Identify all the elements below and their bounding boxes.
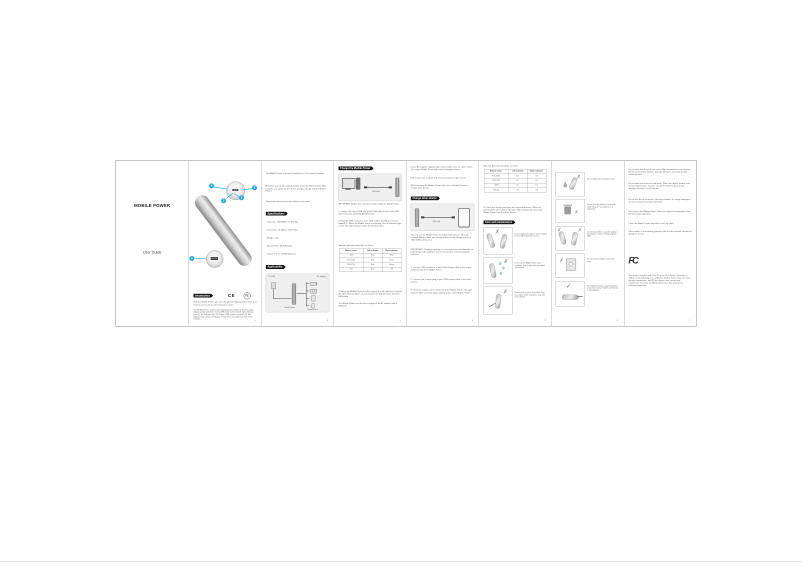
callout-2: 2 (239, 195, 244, 200)
intro-paragraph: With the Mobile Power, you can charge yo… (193, 301, 256, 306)
diagram-stub (306, 305, 309, 306)
pc-tower-icon (356, 178, 360, 190)
power-bank-small-icon (562, 295, 579, 300)
mobile-power-bar-icon (292, 283, 296, 304)
power-bank-body (192, 193, 254, 269)
care-card-illustration: ✗ (483, 257, 512, 284)
panel-divider (478, 161, 479, 326)
care-card-illustration: ✗ (556, 254, 585, 278)
section-header-introduction: Introduction (193, 294, 213, 298)
diagram-label: USB cable (372, 191, 380, 193)
spec-item: - Weight : 75g (266, 237, 329, 240)
body-paragraph: Do not store the device in cold areas. W… (628, 182, 691, 190)
care-card-caption: Do not wash the product or put it into w… (587, 258, 619, 262)
table-cell: Off (527, 188, 546, 193)
diagram-label: Digital devices (307, 309, 318, 311)
care-card-illustration: ✓ (556, 281, 585, 306)
cross-icon: ✗ (575, 209, 579, 215)
diagram-stub (297, 293, 307, 294)
page-number: 2 (327, 320, 328, 322)
diagram-stub (306, 298, 309, 299)
fire-icon (563, 181, 568, 187)
body-paragraph: If the product is not working properly, … (628, 230, 691, 235)
body-paragraph: Do not use harsh chemicals, cleaning sol… (628, 198, 691, 203)
care-card-caption: Do not disassemble or open the product. … (587, 231, 619, 238)
power-bank-small-icon (571, 232, 578, 246)
spec-item: - Input: DC5V / 800mA (max) (266, 245, 329, 248)
fcc-statement: This device complies with Part 15 of the… (628, 274, 691, 287)
panel-page-5: Indicator behavior should be as follow: … (479, 161, 551, 326)
diagram-label: USB cable (432, 221, 440, 223)
water-drop-icon (500, 272, 502, 275)
manual-step: 1. Connect the micro-USB end of the USB … (338, 210, 401, 215)
panel-page-4: If your AC adapter supports big current … (406, 161, 478, 326)
body-paragraph: You can use the Mobile Power to charge o… (411, 234, 474, 242)
diagram-stub (306, 283, 309, 284)
section-header-applicability: Applicability (266, 265, 286, 269)
table-caption: Indicator behavior should be as follow: (338, 244, 401, 247)
diagram-label: AC adapters (317, 276, 326, 278)
table-cell: Full (339, 267, 363, 272)
product-illustration: 4 3 1 2 5 (189, 161, 261, 291)
manual-step: 2. Connect the charger plug of your USB … (411, 278, 474, 283)
section-header-charge-other: Charge other device (411, 196, 440, 200)
pc-stand (345, 189, 350, 190)
table-cell: Full out (484, 188, 508, 193)
usb-output-inner (211, 258, 217, 259)
spec-item: - Dimension: 25.4(dia) x 105mm(L) (266, 229, 329, 232)
applicability-diagram: PC USB AC adapters (266, 274, 330, 313)
section-header-specifications: Specifications (266, 212, 288, 216)
body-paragraph: Full charge time is about 3 to 5 hours b… (411, 177, 474, 180)
body-paragraph: While charging the Mobile Power, you can… (411, 184, 474, 189)
panel-divider (333, 161, 334, 326)
washing-machine-door (569, 262, 573, 266)
page-number: 1 (255, 320, 256, 322)
usb-cable-icon (424, 217, 452, 218)
panel-cover: MOBILE POWER User Guide (116, 161, 188, 326)
panel-page-2: The Mobile Power is meant for partial us… (261, 161, 333, 326)
care-card-caption: Do not charge the product in direct sunl… (515, 233, 547, 237)
panel-page-7: Do not store the device in hot areas. Hi… (624, 161, 696, 326)
callout-1: 1 (221, 198, 226, 203)
indicator-table: Battery status Left indicator Right indi… (484, 169, 546, 193)
page-number: 3 (400, 320, 401, 322)
care-card-caption: Do not use the Mobile Power in wet condi… (515, 262, 547, 269)
power-bank-small-icon (495, 294, 502, 309)
mp3-player-icon (311, 303, 315, 308)
cross-icon: ✗ (557, 227, 561, 233)
screenshot-canvas: MOBILE POWER User Guide 4 3 1 2 (0, 0, 802, 567)
power-bank-small-icon (489, 263, 497, 278)
check-icon: ✓ (566, 283, 571, 290)
page-number: 7 (690, 320, 691, 322)
cross-icon: ✗ (577, 174, 581, 180)
table-caption: Indicator behavior should be as follow: (483, 165, 546, 168)
cross-icon: ✗ (503, 289, 507, 296)
phone-icon (458, 208, 469, 227)
phone-small-icon (311, 295, 315, 301)
body-paragraph: The Mobile Power can also be charged via… (338, 302, 401, 307)
panel-page-3: Charge the Mobile Power USB cable IMPORT… (334, 161, 406, 326)
usb-plug-icon (452, 216, 455, 218)
battery-nub (316, 283, 317, 284)
care-card-illustration: ✗ (556, 199, 585, 223)
panel-page-1: 4 3 1 2 5 Introduction CE FC With the Mo… (189, 161, 261, 326)
fcc-mark-small: FC (244, 292, 251, 299)
camera-lens (312, 290, 315, 293)
callout-5: 5 (189, 256, 194, 261)
page-number: 4 (472, 320, 473, 322)
care-card-illustration: ✗ (556, 172, 585, 196)
fcc-mark-text: FC (245, 294, 249, 297)
mobile-power-bar-icon (415, 208, 419, 227)
page-number: 6 (617, 320, 618, 322)
table-cell: Off (508, 188, 527, 193)
diagram-connector-line (273, 298, 292, 299)
diagram-stub (306, 291, 309, 292)
cross-icon: ✗ (504, 258, 508, 265)
callout-4: 4 (209, 183, 214, 188)
usb-plug-icon (389, 186, 392, 188)
usb-cable-icon (577, 296, 582, 297)
water-drop-icon (502, 267, 504, 270)
panel-divider (551, 161, 552, 326)
panel-divider (624, 161, 625, 326)
pc-monitor-icon (342, 178, 355, 188)
callout-3: 3 (252, 185, 257, 190)
page-number: 5 (545, 320, 546, 322)
body-paragraph: Do not store the device in hot areas. Hi… (628, 168, 691, 176)
usb-cable-icon (367, 187, 389, 188)
important-note: IMPORTANT: Charging capacity is a calcul… (411, 248, 474, 256)
care-card-illustration: ✗ ✗ (556, 226, 585, 250)
trash-bin-body (564, 206, 571, 214)
cross-icon: ✗ (559, 257, 563, 263)
cross-icon: ✗ (578, 227, 582, 233)
power-bank-small-icon (558, 231, 566, 245)
fcc-logo: FC (628, 256, 637, 266)
manual-step: 4. Check the charge level from the conne… (483, 206, 546, 214)
care-card-illustration: ✗ (483, 286, 512, 314)
section-header-care: Care and maintenance (483, 220, 515, 224)
body-paragraph: Clean the Mobile Power only with a soft,… (628, 222, 691, 225)
important-note: IMPORTANT: Before first use please fully… (338, 203, 401, 206)
body-paragraph: Do not paint the Mobile Power. Paint can… (628, 210, 691, 215)
manual-step: 2. Plug the USB connector of the USB cab… (338, 220, 401, 228)
care-card-caption: Do not crush or pierce the product. Keep… (515, 292, 547, 299)
care-card-caption: Do not dispose of the product in a fire. (587, 178, 619, 180)
panel-divider (261, 161, 262, 326)
diagram-label: Mobile Power (285, 307, 295, 309)
water-drop-icon (499, 262, 501, 265)
diagram-label: PC USB (269, 276, 275, 278)
care-card-illustration: ✗ (483, 228, 512, 255)
callout-line (214, 187, 227, 190)
callout-line (195, 258, 206, 259)
micro-usb-inner (233, 190, 237, 191)
manual-step: 3. When the Mobile Power is fully charge… (338, 290, 401, 298)
table-cell: Off (382, 267, 401, 272)
ce-mark: CE (228, 293, 235, 298)
body-paragraph: The Mobile Power is meant for partial us… (266, 172, 329, 175)
section-header-charge: Charge the Mobile Power (338, 166, 373, 170)
table-cell: Red (363, 267, 382, 272)
panel-page-6: ✗ Do not dispose of the product in a fir… (551, 161, 623, 326)
care-card-caption: For long-term storage, charge the produc… (587, 285, 619, 292)
intro-paragraph: The Mobile Power contains the following … (193, 309, 256, 321)
manual-step: 3. Open the output control switch (1) of… (411, 289, 474, 294)
power-bank-small-icon (499, 234, 507, 249)
document-title: MOBILE POWER (116, 203, 188, 208)
panel-divider (406, 161, 407, 326)
spec-item: - Output: DC 5V / 1000mA (max) (266, 253, 329, 256)
body-paragraph: Read this user guide carefully before us… (266, 185, 329, 193)
body-paragraph: Stay power wherever you go whatever you … (266, 200, 329, 203)
spec-item: - Capacity : 2200mAh/3.7V (8.14W) (266, 221, 329, 224)
charge-other-device-diagram: USB cable (411, 204, 475, 231)
manual-step: 1. Connect USB connector of your USB cha… (411, 266, 474, 271)
charge-from-pc-diagram: USB cable (338, 174, 402, 201)
document-subtitle: User Guide (116, 250, 188, 254)
care-card-caption: Do not throw the product in household wa… (587, 204, 619, 211)
body-paragraph: If your AC adapter supports big current … (411, 166, 474, 171)
page-bottom-divider (0, 561, 802, 562)
indicator-table: Battery status Left indicator Right indi… (339, 248, 401, 272)
mobile-power-bar-icon (395, 178, 399, 197)
cross-icon: ✗ (495, 229, 499, 236)
user-guide-sheet: MOBILE POWER User Guide 4 3 1 2 (115, 160, 697, 327)
diagram-bracket (306, 282, 307, 307)
panel-divider (188, 161, 189, 326)
